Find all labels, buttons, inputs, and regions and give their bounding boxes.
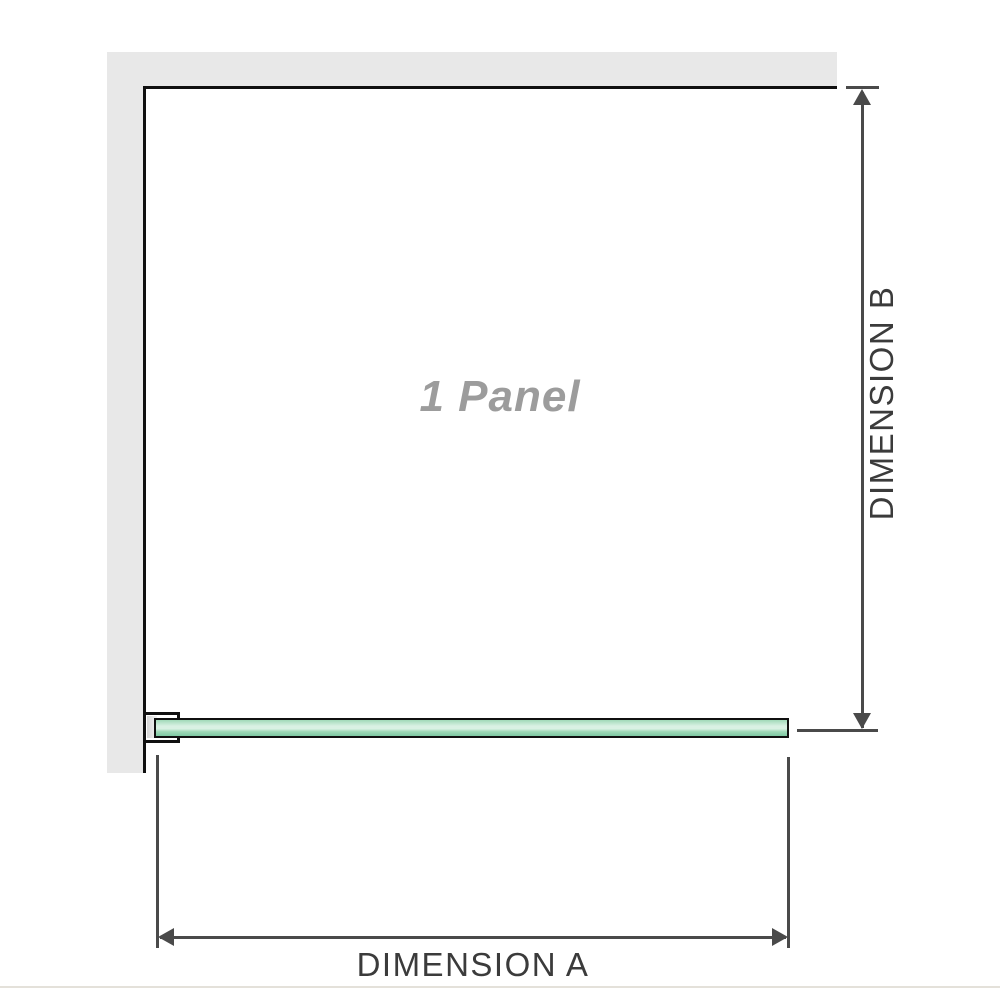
room-outline-top <box>143 86 837 89</box>
arrow-left-icon <box>158 928 174 946</box>
dimension-a-extension-left <box>156 755 159 948</box>
room-outline-left <box>143 86 146 773</box>
arrow-right-icon <box>772 928 788 946</box>
dimension-a-line <box>160 936 786 939</box>
arrow-up-icon <box>853 89 871 105</box>
wall-top <box>107 52 837 86</box>
arrow-down-icon <box>853 713 871 729</box>
panel-count-label: 1 Panel <box>350 372 650 422</box>
glass-panel <box>154 718 789 738</box>
dimension-b-label: DIMENSION B <box>863 286 901 521</box>
panel-diagram: 1 Panel DIMENSION B DIMENSION A <box>0 0 1000 1000</box>
dimension-a-extension-right <box>787 757 790 948</box>
bottom-edge-divider <box>0 986 1000 988</box>
dimension-a-label: DIMENSION A <box>357 946 590 984</box>
dimension-b-tick-bottom <box>797 729 878 732</box>
wall-left <box>107 52 143 773</box>
